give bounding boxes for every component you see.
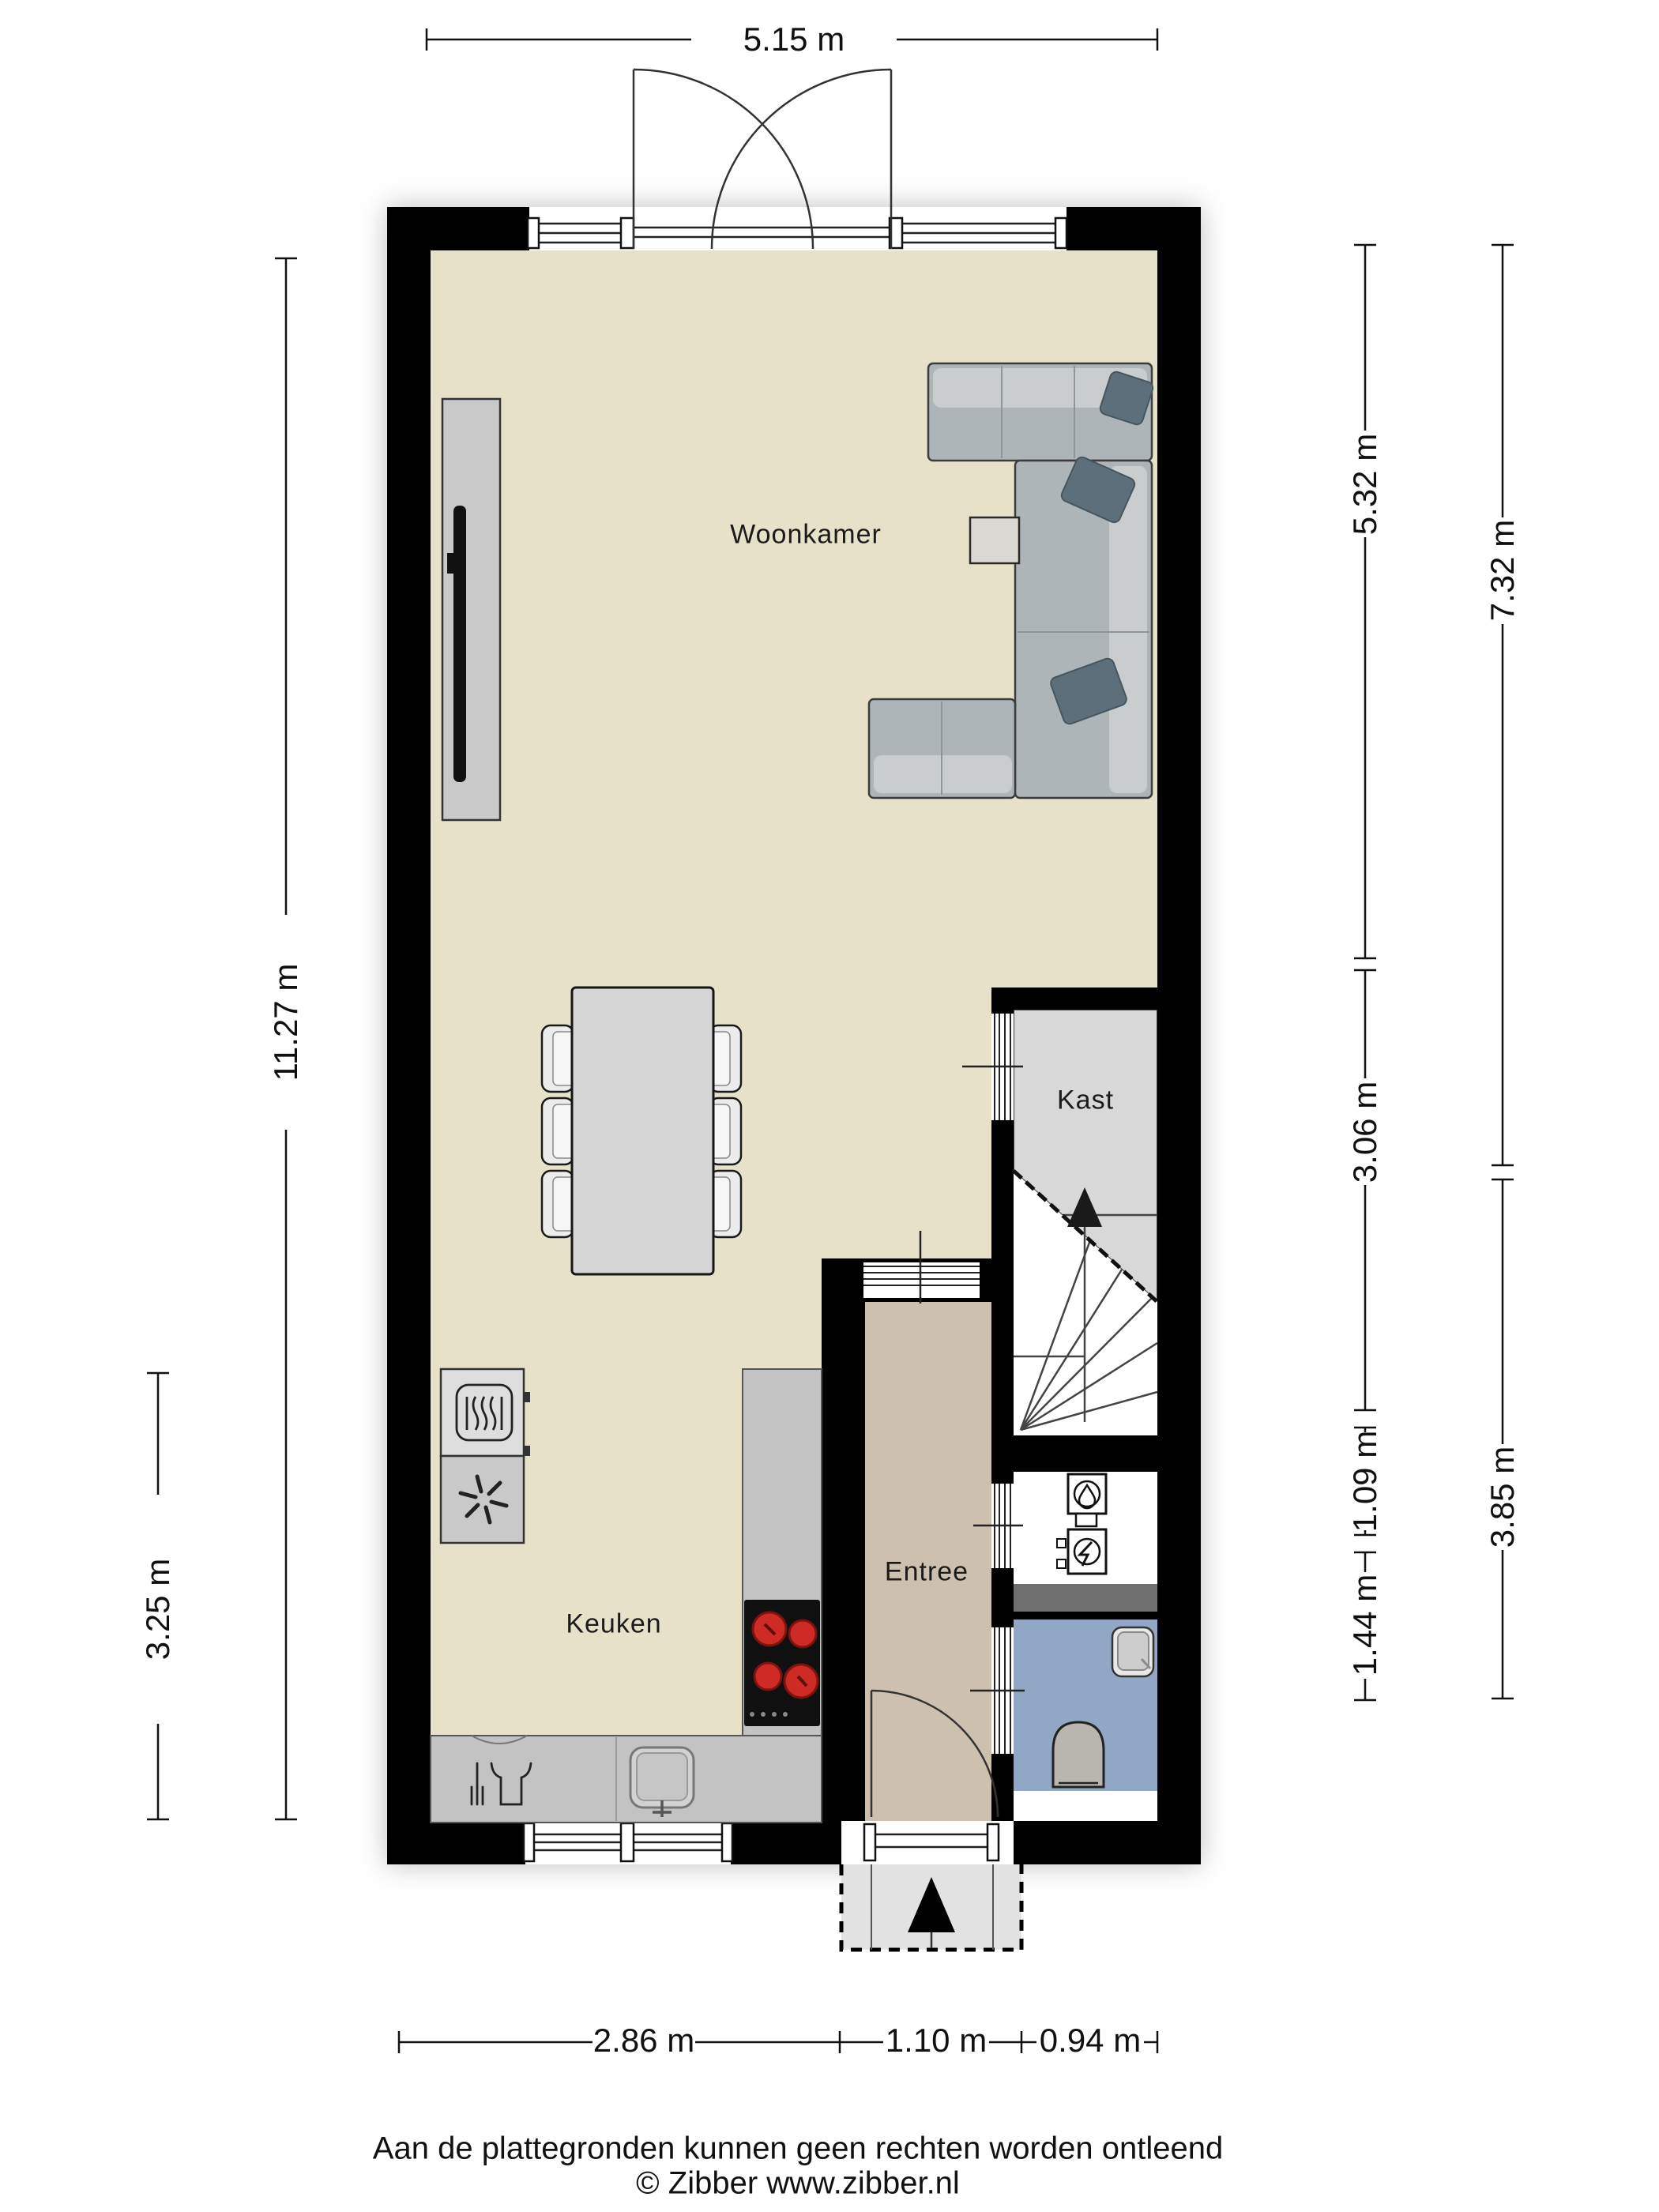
dining-table: [572, 987, 713, 1274]
dim-left-kitchen: 3.25 m: [139, 1559, 177, 1660]
sink-icon: [630, 1747, 694, 1817]
dim-left-total: 11.27 m: [267, 964, 305, 1082]
dim-right-toilet: 1.44 m: [1346, 1574, 1384, 1676]
top-openings: [528, 70, 1066, 250]
kitchen-window: [524, 1823, 732, 1861]
tv-icon: [453, 506, 466, 782]
cooktop-burners-icon: [744, 1600, 820, 1726]
dim-bottom-kitchen: 2.86 m: [593, 2022, 694, 2060]
footer-disclaimer: Aan de plattegronden kunnen geen rechten…: [373, 2131, 1223, 2167]
wall-kast-top: [991, 987, 1157, 1010]
wall-top-left: [387, 207, 529, 250]
side-table: [970, 517, 1019, 563]
wall-top-right: [1066, 207, 1201, 250]
dim-right-living: 5.32 m: [1346, 434, 1384, 535]
boiler-electric-icon: [1074, 1539, 1100, 1564]
room-label-entree: Entree: [885, 1557, 969, 1588]
dim-top: 5.15 m: [743, 21, 845, 58]
room-label-woonkamer: Woonkamer: [730, 520, 882, 551]
dim-right-closet: 1.09 m: [1346, 1431, 1384, 1532]
footer-copyright: © Zibber www.zibber.nl: [636, 2166, 960, 2202]
wall-stairs-bottom: [991, 1435, 1157, 1472]
dim-right-outer-upper: 7.32 m: [1484, 520, 1522, 621]
wall-entree-left: [822, 1258, 865, 1821]
dim-bottom-right: 0.94 m: [1040, 2022, 1141, 2060]
freezer-unit: [441, 1456, 524, 1543]
kitchen-counter-bottom: [431, 1736, 822, 1823]
dim-bottom-entrance: 1.10 m: [886, 2022, 987, 2060]
wall-bottom-right: [1014, 1821, 1201, 1864]
dim-right-stairs: 3.06 m: [1346, 1082, 1384, 1183]
tv-cabinet: [442, 399, 500, 820]
wall-right: [1157, 207, 1201, 1864]
wall-bottom-mid: [731, 1821, 841, 1864]
dining-set: [542, 987, 741, 1274]
wall-bottom-left: [387, 1821, 525, 1864]
room-label-kast: Kast: [1057, 1085, 1114, 1116]
floorplan-drawing: [0, 0, 1659, 2212]
door-opening-sill: [628, 215, 897, 250]
dim-right-outer-lower: 3.85 m: [1484, 1446, 1522, 1548]
room-label-keuken: Keuken: [566, 1609, 661, 1640]
wall-left: [387, 207, 431, 1864]
floorplan-page: Woonkamer Kast Entree Keuken 5.15 m 11.2…: [0, 0, 1659, 2212]
toilet-bowl: [1053, 1722, 1104, 1787]
